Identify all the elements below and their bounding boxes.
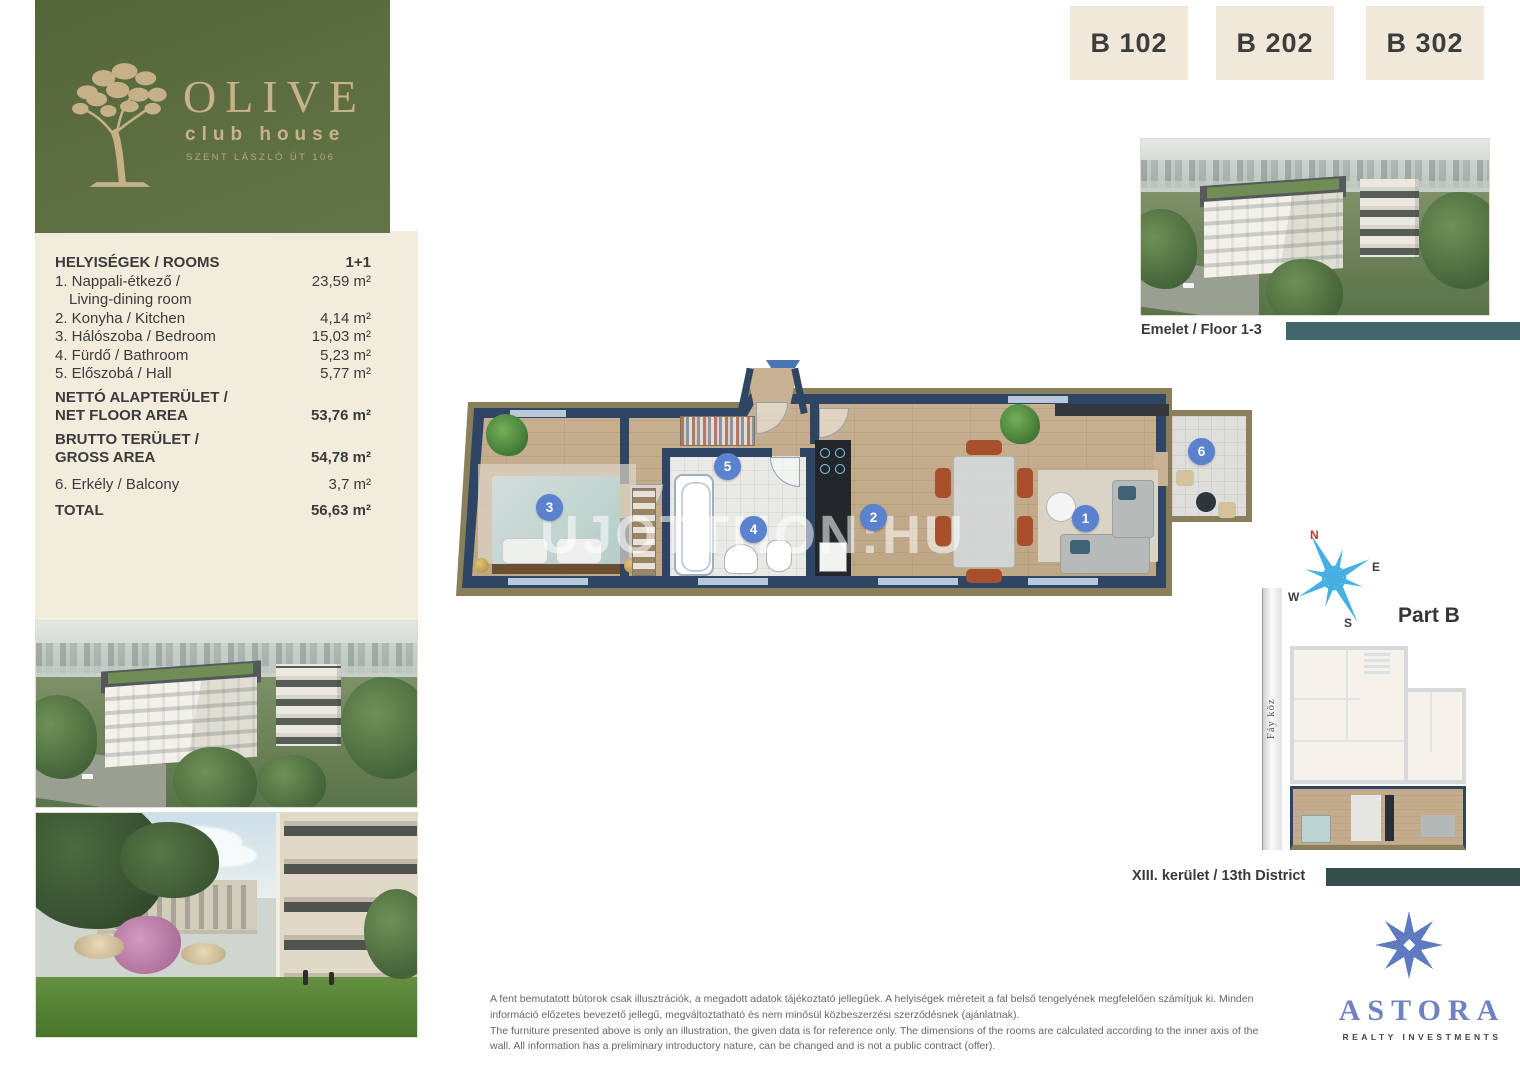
window [1028,578,1098,585]
compass-rose-icon [1292,522,1376,630]
balcony-chair [1176,470,1194,486]
bedside-lamp [474,558,489,573]
cooktop-burner [835,448,845,458]
key-plan-block [1404,688,1466,784]
dining-chair [1017,468,1033,498]
floor-caption: Emelet / Floor 1-3 [1141,322,1262,338]
window [510,410,566,417]
table-row: 4. Fürdő / Bathroom 5,23 m² [55,347,371,366]
part-label: Part B [1398,604,1460,628]
street-name-label: Fáy köz [1262,588,1281,850]
compass-west-label: W [1288,590,1299,604]
key-plan-block [1290,646,1408,784]
unit-badge-b202[interactable]: B 202 [1216,6,1334,80]
olive-tree-icon [60,48,180,188]
total-row: TOTAL 56,63 m² [55,502,371,521]
unit-badge-b302[interactable]: B 302 [1366,6,1484,80]
sofa-cushion [1118,486,1136,500]
developer-name: ASTORA [1336,994,1508,1028]
key-plan-faded-floors [1290,646,1468,786]
compass-north-label: N [1310,528,1319,542]
gross-area-row: BRUTTO TERÜLET / [55,431,371,450]
unit-badge-b102[interactable]: B 102 [1070,6,1188,80]
brand-subtitle: club house [185,124,345,146]
key-plan-wall [1430,692,1432,752]
umbrella [181,943,227,965]
brand-logo-block: OLIVE club house SZENT LÁSZLÓ ÚT 106 [35,0,390,233]
brochure-page: OLIVE club house SZENT LÁSZLÓ ÚT 106 HEL… [0,0,1520,1080]
brand-address: SZENT LÁSZLÓ ÚT 106 [186,152,335,163]
table-row: 1. Nappali-étkező / 23,59 m² [55,273,371,292]
table-row: 5. Előszobá / Hall 5,77 m² [55,365,371,384]
key-plan-wall [1294,740,1404,742]
plant [486,414,528,456]
astora-star-icon [1374,908,1444,984]
disclaimer-text: A fent bemutatott bútorok csak illusztrá… [490,992,1280,1055]
key-plan-kitchen [1385,795,1394,841]
car [1183,283,1194,288]
building-aerial-photo [35,620,418,808]
umbrella [74,934,124,959]
tree [257,755,326,808]
dining-chair [935,468,951,498]
disclaimer-en: The furniture presented above is only an… [490,1024,1280,1056]
room-table-header: HELYISÉGEK / ROOMS 1+1 [55,254,371,273]
watermark: UJOTTHON:HU [540,504,1115,566]
room-table: HELYISÉGEK / ROOMS 1+1 1. Nappali-étkező… [55,254,371,521]
balcony-table [1196,492,1216,512]
building-aerial-photo-right [1140,138,1490,316]
person [329,972,334,985]
table-row: 3. Hálószoba / Bedroom 15,03 m² [55,328,371,347]
key-plan-stairs [1364,652,1390,674]
wall-bathroom-top [662,448,772,457]
table-row: Living-dining room [55,291,371,310]
dining-chair [966,440,1002,455]
window [698,578,768,585]
key-plan-bath [1351,795,1381,841]
room-number-5: 5 [714,453,741,480]
tv-console [1055,404,1169,416]
window [508,578,588,585]
key-plan-bed [1301,815,1331,843]
brand-name: OLIVE [183,70,366,123]
key-plan-wall [1294,698,1360,700]
compass-south-label: S [1344,616,1352,630]
photo-lawn [36,977,417,1037]
person [303,970,308,985]
cooktop-burner [820,448,830,458]
photo-side-building-balconies [276,666,341,744]
tree [173,747,257,808]
balcony-row: 6. Erkély / Balcony 3,7 m² [55,476,371,495]
courtyard-photo [35,812,418,1038]
photo-side-building-balconies [1360,181,1419,255]
dining-chair [966,569,1002,583]
cooktop-burner [820,464,830,474]
bookshelf [680,416,755,446]
gross-area-row: GROSS AREA 54,78 m² [55,449,371,468]
compass-east-label: E [1372,560,1380,574]
district-caption: XIII. kerület / 13th District [1132,868,1305,884]
plant [1000,404,1040,444]
room-number-6: 6 [1188,438,1215,465]
key-plan [1290,646,1468,854]
room-number-4: 4 [740,516,767,543]
cooktop-burner [835,464,845,474]
floor-plan: UJOTTHON:HU 1 2 3 4 5 6 [448,356,1258,656]
district-caption-bar [1326,868,1520,886]
wall-hall-kitchen [810,404,819,444]
key-plan-wall [1346,650,1348,740]
net-area-row: NETTÓ ALAPTERÜLET / [55,389,371,408]
key-plan-highlighted-unit [1290,786,1466,850]
room-number-1: 1 [1072,505,1099,532]
window [1008,396,1068,403]
disclaimer-hu: A fent bemutatott bútorok csak illusztrá… [490,992,1280,1024]
room-number-3: 3 [536,494,563,521]
balcony-chair [1218,502,1236,518]
window [878,578,958,585]
room-number-2: 2 [860,504,887,531]
developer-tagline: REALTY INVESTMENTS [1336,1032,1508,1042]
table-row: 2. Konyha / Kitchen 4,14 m² [55,310,371,329]
net-area-row: NET FLOOR AREA 53,76 m² [55,407,371,426]
car [82,774,93,779]
floor-caption-bar [1286,322,1520,340]
key-plan-sofa [1421,815,1455,837]
